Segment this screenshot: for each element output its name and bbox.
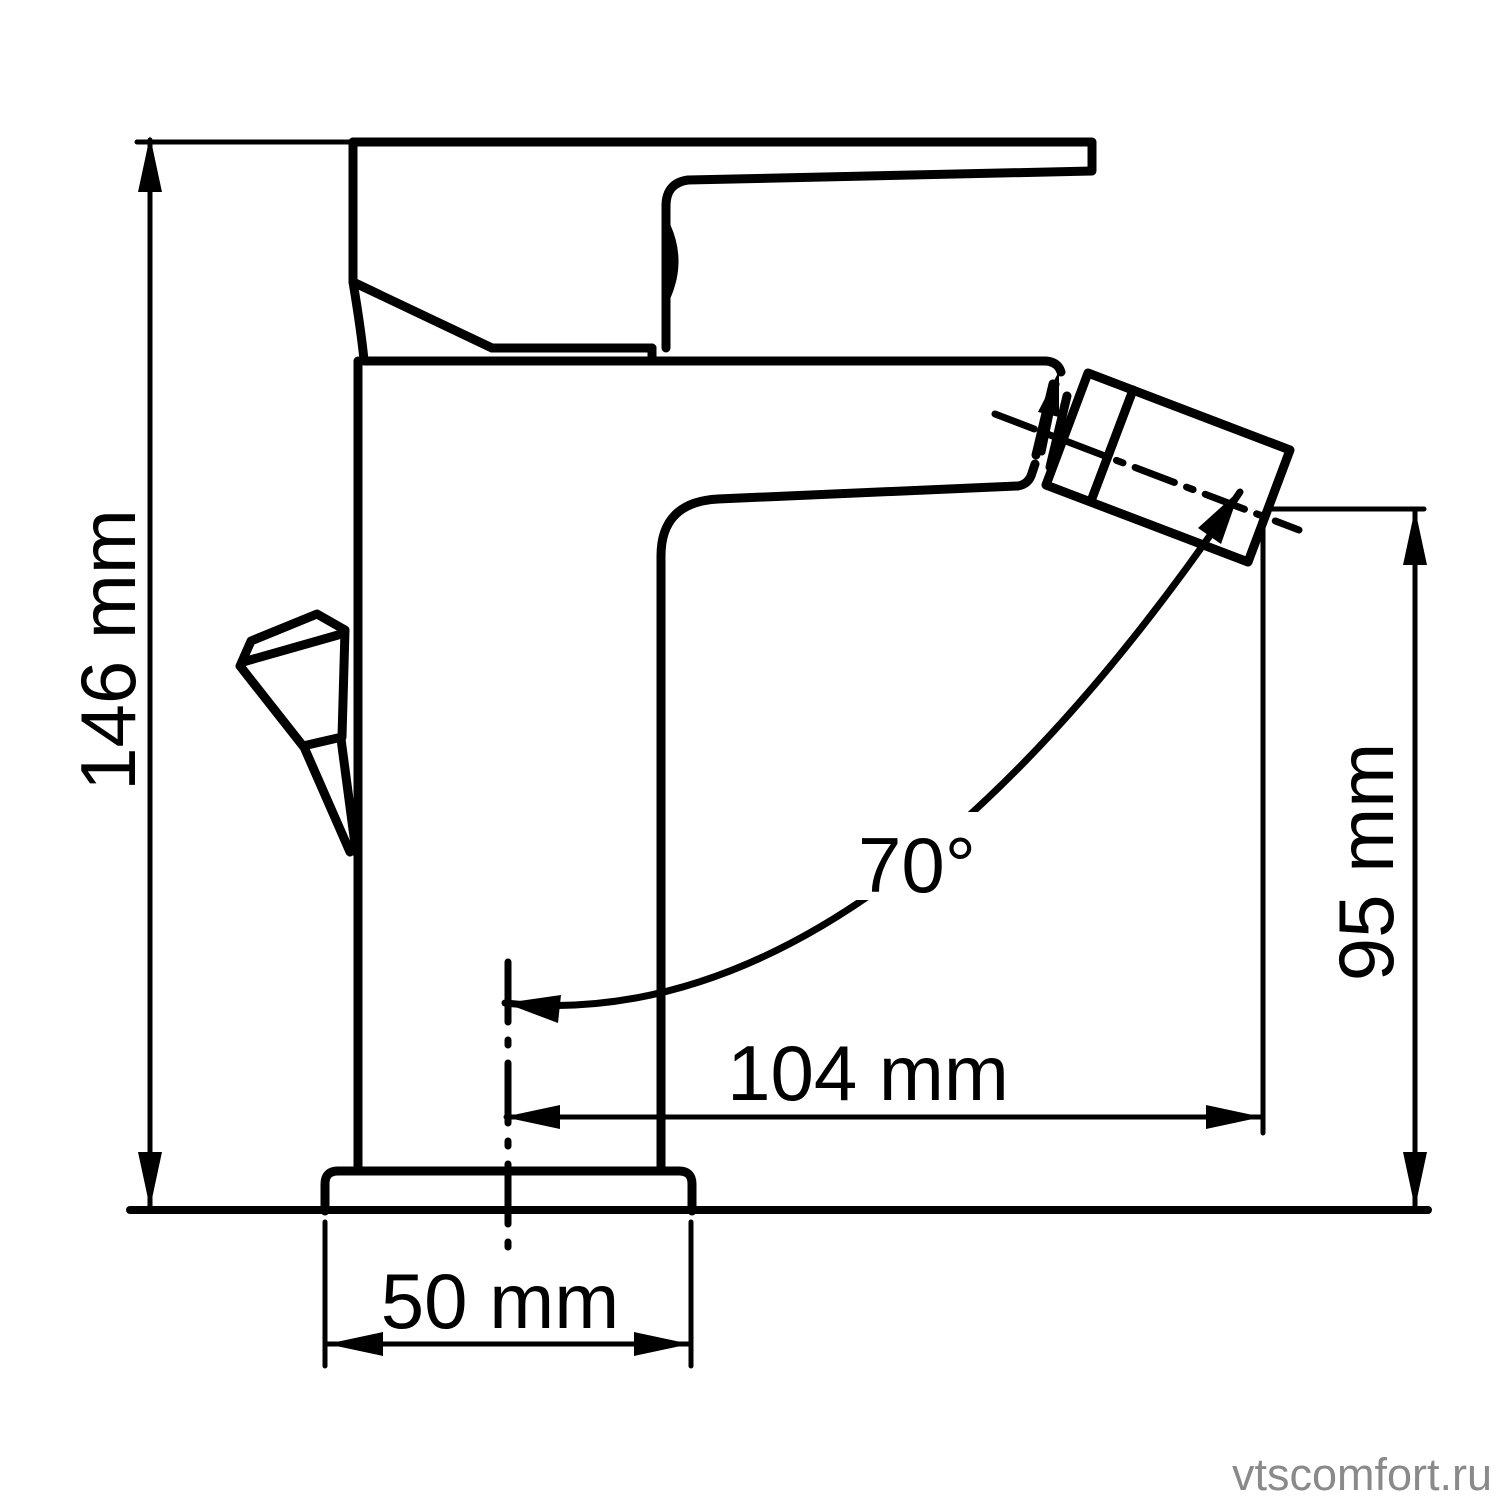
- popup-drain-rod: [304, 739, 356, 852]
- watermark: vtscomfort.ru: [1232, 1449, 1492, 1500]
- technical-drawing-canvas: 146 mm 95 mm 104 mm 50 mm 70° vtscomfort…: [0, 0, 1500, 1500]
- total-height-label: 146 mm: [64, 509, 152, 791]
- spout-reach-label: 104 mm: [727, 1029, 1009, 1117]
- cartridge-cover-outline: [353, 142, 652, 348]
- reach-arrow-right: [1206, 1105, 1262, 1129]
- aerator-angle-label: 70°: [858, 821, 976, 909]
- faucet-dimension-drawing: 146 mm 95 mm 104 mm 50 mm 70° vtscomfort…: [0, 0, 1500, 1500]
- spout-height-arrow-bottom: [1403, 1152, 1427, 1208]
- flow-arrow-head: [1038, 371, 1059, 417]
- base-width-arrow-left: [327, 1332, 383, 1356]
- handle-lever-outline: [353, 142, 1092, 348]
- reach-arrow-left: [504, 1105, 560, 1129]
- angle-arc: [505, 492, 1240, 1006]
- aerator-cap-partition: [1091, 390, 1133, 501]
- cartridge-cover-corner: [353, 282, 364, 360]
- base-width-label: 50 mm: [381, 1257, 619, 1345]
- body-top-edge: [364, 361, 1061, 372]
- base-width-arrow-right: [634, 1332, 690, 1356]
- spout-height-label: 95 mm: [1322, 743, 1410, 981]
- spout-height-arrow-top: [1403, 509, 1427, 565]
- aerator-body: [1046, 373, 1290, 562]
- height-arrow-bottom: [138, 1152, 162, 1208]
- angle-arc-arrow-left: [505, 995, 561, 1023]
